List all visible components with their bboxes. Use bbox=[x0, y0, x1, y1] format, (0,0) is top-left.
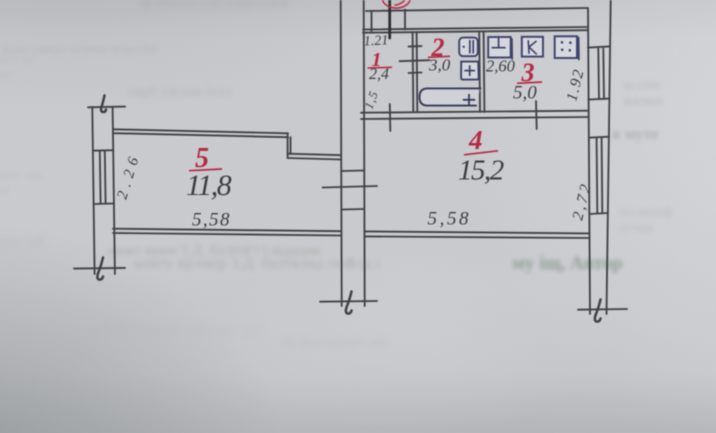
svg-text:5,0: 5,0 bbox=[513, 83, 537, 104]
svg-text:2,4: 2,4 bbox=[369, 66, 389, 83]
svg-text:5,58: 5,58 bbox=[428, 209, 472, 230]
svg-text:2.26: 2.26 bbox=[115, 150, 144, 201]
svg-text:3,0: 3,0 bbox=[428, 56, 451, 75]
svg-text:1.92: 1.92 bbox=[563, 67, 588, 103]
svg-text:1.21: 1.21 bbox=[363, 33, 388, 49]
svg-text:11,8: 11,8 bbox=[186, 169, 232, 202]
svg-text:4: 4 bbox=[468, 125, 483, 155]
svg-text:2,72: 2,72 bbox=[569, 180, 595, 222]
svg-text:15,2: 15,2 bbox=[458, 155, 504, 187]
svg-text:2,60: 2,60 bbox=[486, 57, 516, 76]
svg-text:5,58: 5,58 bbox=[192, 210, 231, 231]
